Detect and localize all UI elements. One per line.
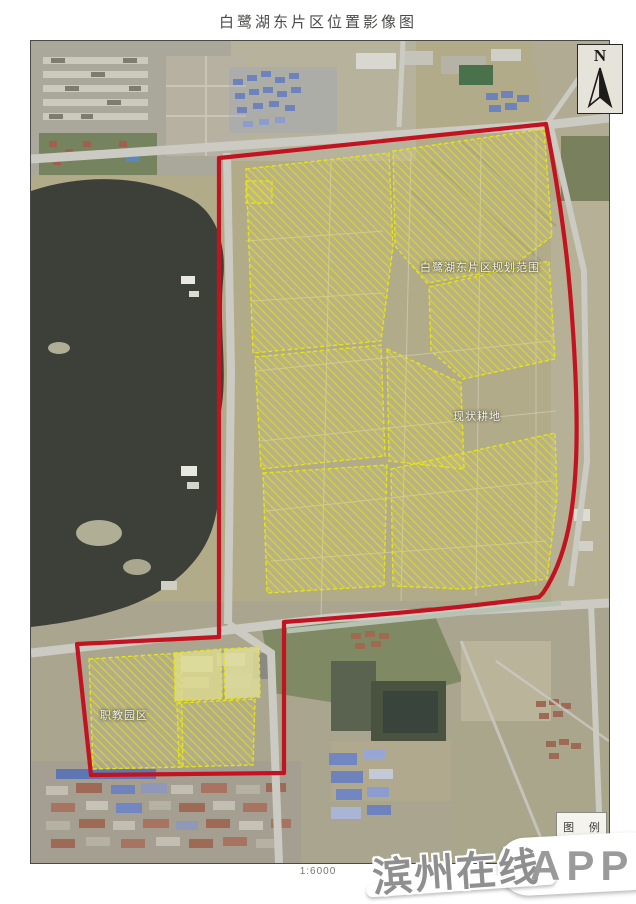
page-title: 白鹭湖东片区位置影像图 <box>0 11 636 32</box>
north-arrow-icon <box>585 66 615 110</box>
area-label-campus: 职教园区 <box>100 707 148 723</box>
north-label: N <box>594 46 606 66</box>
map-frame: 图 例 <box>30 40 610 864</box>
legend-title: 图 例 <box>557 819 606 835</box>
satellite-map <box>31 41 609 863</box>
north-arrow-box: N <box>577 44 623 114</box>
area-label-farmland: 现状耕地 <box>453 408 501 424</box>
watermark-app-badge: APP <box>530 842 634 890</box>
watermark-site-name: 滨州在线 <box>370 834 542 904</box>
lake-island <box>76 520 122 546</box>
area-label-main: 白鹭湖东片区规划范围 <box>420 259 540 275</box>
lake <box>31 179 224 627</box>
page: { "page": { "title": "白鹭湖东片区位置影像图", "sca… <box>0 0 636 899</box>
